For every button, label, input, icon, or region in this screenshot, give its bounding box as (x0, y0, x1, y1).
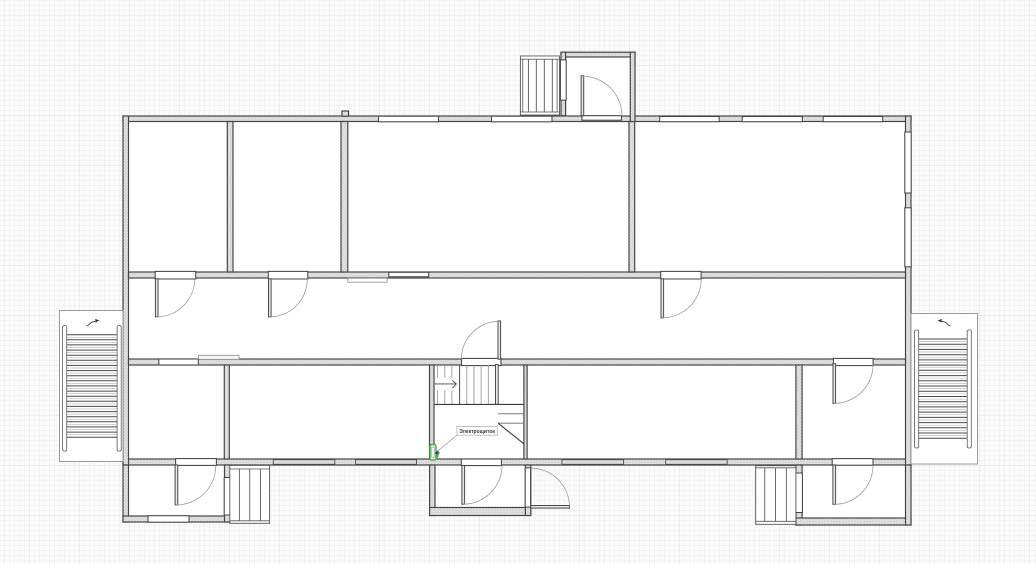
svg-text:Электрощиток: Электрощиток (459, 429, 495, 435)
